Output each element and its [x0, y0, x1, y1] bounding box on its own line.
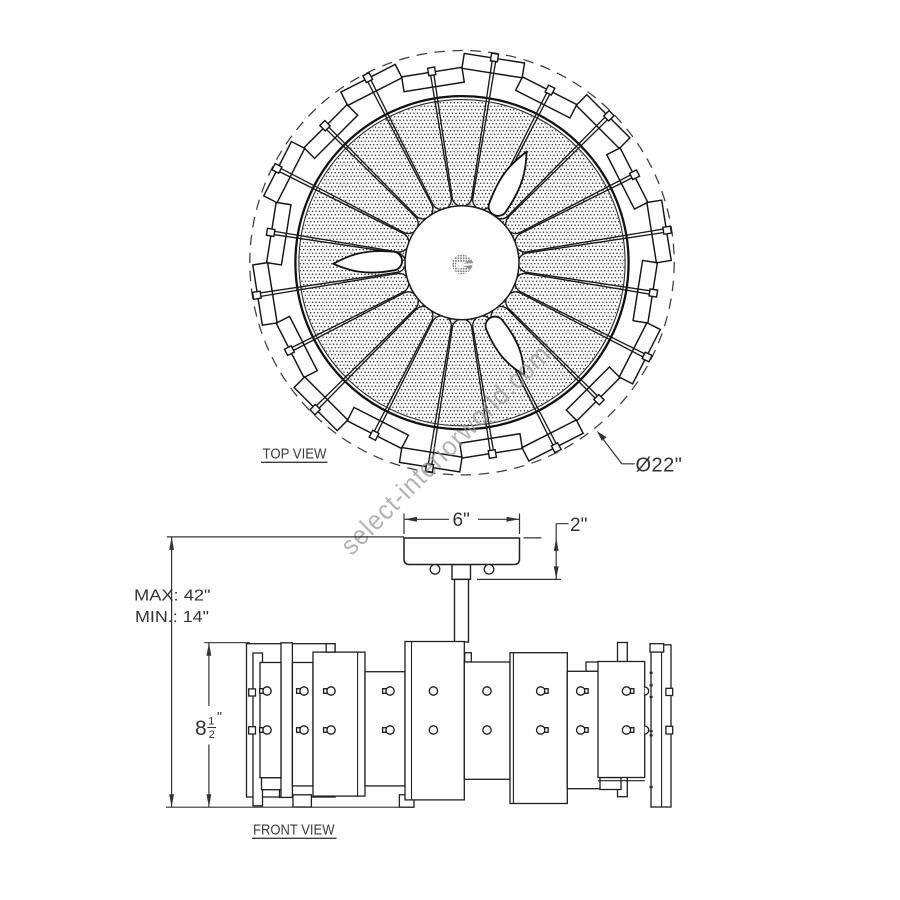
svg-text:MAX: 42": MAX: 42": [134, 588, 211, 605]
svg-text:2": 2": [570, 515, 587, 536]
svg-text:MIN.: 14": MIN.: 14": [135, 609, 209, 626]
svg-text:6": 6": [453, 510, 470, 531]
svg-text:FRONT VIEW: FRONT VIEW: [253, 822, 335, 839]
svg-text:Ø22": Ø22": [636, 455, 683, 477]
svg-text:8: 8: [195, 717, 207, 740]
svg-text:TOP VIEW: TOP VIEW: [263, 446, 328, 463]
svg-text:": ": [217, 709, 222, 725]
svg-text:1: 1: [208, 716, 214, 728]
svg-text:2: 2: [209, 729, 215, 741]
